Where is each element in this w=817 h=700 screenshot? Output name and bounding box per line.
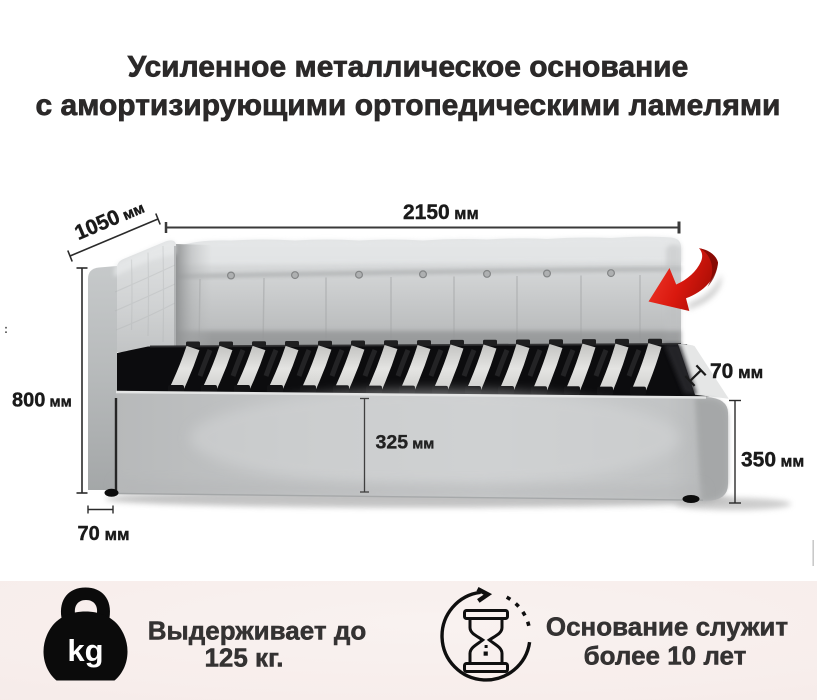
- svg-text:70 мм: 70 мм: [78, 523, 130, 545]
- svg-text:325 мм: 325 мм: [376, 432, 435, 454]
- svg-text:с амортизирующими ортопедическ: с амортизирующими ортопедическими ламеля…: [35, 89, 780, 122]
- svg-text:70 мм: 70 мм: [710, 360, 763, 383]
- svg-text:Основание служит: Основание служит: [546, 612, 789, 642]
- svg-text:2150 мм: 2150 мм: [403, 201, 479, 224]
- svg-text:Усиленное металлическое основ: Усиленное металлическое основание: [128, 51, 689, 84]
- svg-text:800 мм: 800 мм: [12, 390, 72, 412]
- svg-text:более 10 лет: более 10 лет: [584, 641, 747, 671]
- svg-text::: :: [4, 322, 8, 336]
- svg-text:kg: kg: [67, 633, 103, 668]
- svg-text:125 кг.: 125 кг.: [204, 643, 283, 673]
- svg-text:Выдерживает до: Выдерживает до: [148, 616, 366, 646]
